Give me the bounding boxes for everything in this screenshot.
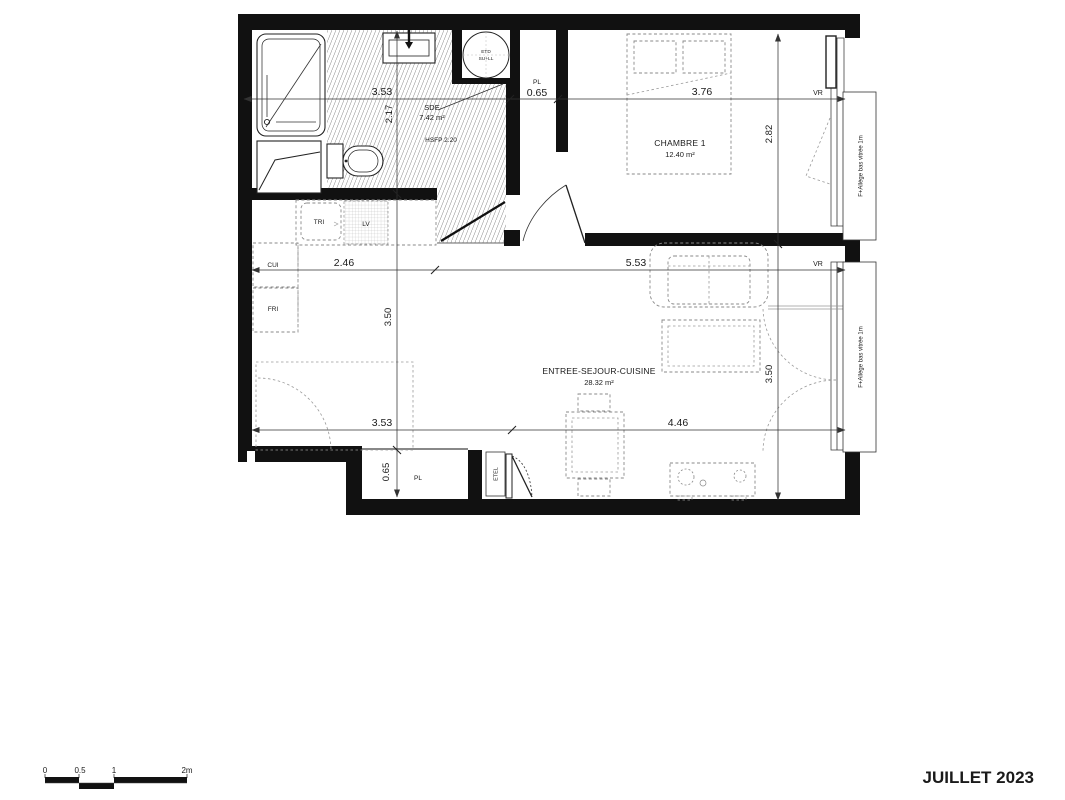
sejour-area: 28.32 m² <box>584 378 614 387</box>
dim-sde-width: 3.53 <box>372 86 393 98</box>
floor-plan-sheet: F+Allège bas vitrée 1m F+Allège bas vitr… <box>0 0 1065 800</box>
dining-table <box>566 394 624 496</box>
laundry-label-2: SU+LL <box>479 56 494 62</box>
living-window <box>763 262 844 452</box>
shower <box>257 34 325 136</box>
dim-kitchen-width: 2.46 <box>334 257 355 269</box>
window-note-bottom-label: F+Allège bas vitrée 1m <box>859 326 865 388</box>
scale-1: 1 <box>112 766 117 775</box>
tri-label: TRI <box>314 219 325 226</box>
dim-sejour-right: 4.46 <box>668 417 689 429</box>
plan-date: JUILLET 2023 <box>923 768 1035 787</box>
etel-label: ETEL <box>494 467 500 481</box>
pl-bottom-label: PL <box>414 475 422 482</box>
dim-window-height: 3.50 <box>764 365 775 384</box>
pl-top-label: PL <box>533 79 541 86</box>
cooker-unit: CUI <box>253 243 298 287</box>
scale-bar: 0 0.5 1 2m <box>43 766 193 789</box>
entry-swing-dashed <box>258 378 331 451</box>
dim-pl-bottom-depth: 0.65 <box>381 463 392 482</box>
cui-label: CUI <box>267 262 278 269</box>
sejour-name: ENTREE-SEJOUR-CUISINE <box>542 366 655 376</box>
french-door-swing-lower <box>763 380 836 452</box>
scale-2m: 2m <box>181 766 192 775</box>
fri-label: FRI <box>268 306 279 313</box>
dim-chambre-depth: 2.82 <box>764 125 775 144</box>
bedroom-window <box>806 36 844 226</box>
entry-jamb-notch <box>247 451 255 463</box>
sofa <box>650 243 768 307</box>
scale-05: 0.5 <box>74 766 86 775</box>
window-annotation-bottom: F+Allège bas vitrée 1m <box>843 262 876 452</box>
sideboard <box>670 463 755 500</box>
dim-chambre-width: 3.76 <box>692 86 713 98</box>
vr-mid-label: VR <box>813 261 823 268</box>
dim-sejour-left: 3.53 <box>372 417 393 429</box>
dim-sejour-width: 5.53 <box>626 257 647 269</box>
window-annotation-top: F+Allège bas vitrée 1m <box>843 92 876 240</box>
chair <box>578 394 610 411</box>
pillow <box>634 41 676 73</box>
toilet <box>327 144 383 178</box>
lv-label: LV <box>362 221 370 228</box>
closet-pl-bottom: PL <box>362 449 468 482</box>
fridge-unit: FRI <box>253 288 298 332</box>
dim-pl-width: 0.65 <box>527 87 548 99</box>
entry-clearance-zone <box>256 362 413 451</box>
pillow <box>683 41 725 73</box>
sink-unit: TRI <box>301 203 341 240</box>
vr-top-label: VR <box>813 90 823 97</box>
entrance-door <box>506 454 532 498</box>
floor-plan-drawing: F+Allège bas vitrée 1m F+Allège bas vitr… <box>0 0 1065 800</box>
laundry-label-1: ETD <box>481 49 491 55</box>
dim-kitchen-depth: 3.50 <box>383 308 394 327</box>
washbasin <box>383 29 435 63</box>
sde-name: SDE <box>424 103 439 112</box>
chambre-name: CHAMBRE 1 <box>654 138 705 148</box>
scale-0: 0 <box>43 766 48 775</box>
window-frame-panel <box>826 36 836 88</box>
etel-cabinet: ETEL <box>486 452 505 496</box>
chair <box>578 479 610 496</box>
coffee-table <box>662 320 760 372</box>
dishwasher-unit: LV <box>344 201 388 244</box>
bedroom-door <box>523 185 585 243</box>
sde-area: 7.42 m² <box>419 113 445 122</box>
window-note-top-label: F+Allège bas vitrée 1m <box>859 135 865 197</box>
sde-ceiling-note: HSFP 2.20 <box>425 137 457 144</box>
dim-sde-depth: 2.17 <box>384 105 395 124</box>
chambre-area: 12.40 m² <box>665 150 695 159</box>
technical-shaft <box>257 141 321 193</box>
casement-swing-dashed <box>806 118 830 184</box>
